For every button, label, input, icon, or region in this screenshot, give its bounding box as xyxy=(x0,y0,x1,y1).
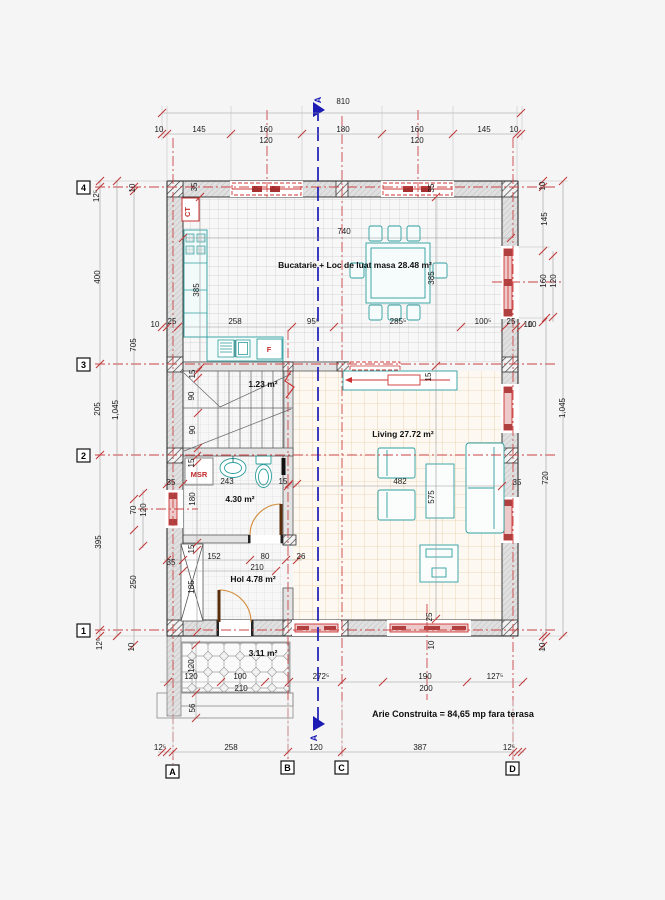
dim-label: 10 xyxy=(538,642,547,651)
washer-label: MSR xyxy=(191,470,208,479)
dim-label: 12⁵ xyxy=(92,190,101,202)
dim-label: 35 xyxy=(513,478,522,487)
dim-label: 210 xyxy=(250,563,264,572)
dim-label: 482 xyxy=(393,477,407,486)
kitchen-sink-icon xyxy=(218,340,250,357)
dim-label: 160 xyxy=(539,274,548,288)
dim-label: 25 xyxy=(507,317,516,326)
dim-label: 15 xyxy=(279,477,288,486)
room-label-stair: 1.23 m² xyxy=(248,379,277,389)
floor-plan-drawing: 810 10 145 160 180 160 145 10 120 120 10… xyxy=(0,0,665,900)
dim-label: 120 xyxy=(259,136,273,145)
dim-label: 210 xyxy=(234,684,248,693)
dim-label: 1,045 xyxy=(558,397,567,418)
dim-label: 395 xyxy=(94,535,103,549)
grid-bubble-c: C xyxy=(335,761,348,774)
dim-label: 15 xyxy=(188,369,197,378)
svg-text:3: 3 xyxy=(81,360,86,370)
dim-label: 10 xyxy=(155,125,164,134)
dim-label: 385 xyxy=(192,283,201,297)
dim-label: 243 xyxy=(220,477,234,486)
grid-bubble-3: 3 xyxy=(77,358,90,371)
dim-label: 127⁵ xyxy=(487,672,504,681)
dim-label: 70 xyxy=(129,505,138,514)
dim-label: 100 xyxy=(233,672,247,681)
shaft xyxy=(282,458,286,475)
armchair xyxy=(378,448,415,478)
grid-bubble-4: 4 xyxy=(77,181,90,194)
dim-label: 10 xyxy=(151,320,160,329)
dim-label: 35 xyxy=(427,183,436,192)
dim-label: 120 xyxy=(410,136,424,145)
dim-label: 152 xyxy=(207,552,221,561)
dim-label: 160 xyxy=(259,125,273,134)
boiler-label: CT xyxy=(183,207,192,217)
room-label-bath: 4.30 m² xyxy=(225,494,254,504)
dim-label: 35 xyxy=(190,182,199,191)
sideboard xyxy=(343,371,457,390)
dim-label: 56 xyxy=(188,703,197,712)
dim-label: 185 xyxy=(187,580,196,594)
window-top-2 xyxy=(381,181,454,197)
dim-label: 120 xyxy=(309,743,323,752)
section-label-top: A xyxy=(313,96,323,103)
dim-label: 35 xyxy=(167,558,176,567)
svg-text:4: 4 xyxy=(81,183,86,193)
room-label-kitchen: Bucatarie + Loc de luat masa 28.48 m² xyxy=(278,260,432,270)
dim-label: 10 xyxy=(524,320,533,329)
dining-table xyxy=(366,243,430,303)
dim-label: 10 xyxy=(538,181,547,190)
dim-label: 15 xyxy=(187,544,196,553)
dim-label: 12⁵ xyxy=(154,743,166,752)
dim-label: 387 xyxy=(413,743,427,752)
pass-through-opening xyxy=(349,361,401,371)
dim-label: 15 xyxy=(424,372,433,381)
dim-label: 35 xyxy=(167,478,176,487)
room-label-terrace: 3.11 m² xyxy=(249,648,278,658)
dim-label: 145 xyxy=(192,125,206,134)
dim-label: 705 xyxy=(129,338,138,352)
window-top-1 xyxy=(230,181,303,197)
dim-label: 10 xyxy=(128,183,137,192)
section-arrow-icon xyxy=(313,102,325,117)
dim-label: 10 xyxy=(427,640,436,649)
window-right-1 xyxy=(501,246,519,319)
door-leaf-icon xyxy=(280,504,283,535)
dim-label: 100⁵ xyxy=(475,317,492,326)
dim-label: 258 xyxy=(228,317,242,326)
terrace-wall-stub xyxy=(167,636,181,716)
dim-label: 272⁵ xyxy=(313,672,330,681)
floor-plan-sheet: 810 10 145 160 180 160 145 10 120 120 10… xyxy=(0,0,665,900)
dim-label: 575 xyxy=(427,490,436,504)
dim-label: 145 xyxy=(540,212,549,226)
window-bottom-1 xyxy=(292,620,341,636)
dim-label: 12⁵ xyxy=(503,743,515,752)
dim-label: 810 xyxy=(336,97,350,106)
section-arrow-icon xyxy=(313,716,325,731)
dim-label: 10 xyxy=(510,125,519,134)
grid-bubble-a: A xyxy=(166,765,179,778)
dim-label: 26 xyxy=(297,552,306,561)
dim-label: 250 xyxy=(129,575,138,589)
dim-label: 740 xyxy=(337,227,351,236)
svg-text:1: 1 xyxy=(81,626,86,636)
dim-label: 385 xyxy=(427,271,436,285)
armchair xyxy=(378,490,415,520)
dim-label: 120 xyxy=(549,274,558,288)
dim-label: 285⁵ xyxy=(390,317,407,326)
section-label-bottom: A xyxy=(309,734,319,741)
toilet-icon xyxy=(256,456,272,488)
svg-text:D: D xyxy=(509,764,516,774)
dim-label: 12⁵ xyxy=(95,638,104,650)
dim-label: 25 xyxy=(425,612,434,621)
svg-text:B: B xyxy=(284,763,291,773)
fridge-label: F xyxy=(267,345,272,354)
room-label-living: Living 27.72 m² xyxy=(372,429,434,439)
dim-label: 120 xyxy=(139,503,148,517)
dim-label: 145 xyxy=(477,125,491,134)
room-label-hall: Hol 4.78 m² xyxy=(230,574,276,584)
svg-text:A: A xyxy=(169,767,176,777)
dim-label: 10 xyxy=(127,642,136,651)
dim-label: 90 xyxy=(188,425,197,434)
dim-label: 258 xyxy=(224,743,238,752)
svg-text:2: 2 xyxy=(81,451,86,461)
dim-label: 95⁵ xyxy=(307,317,319,326)
dim-label: 205 xyxy=(93,402,102,416)
window-right-2 xyxy=(501,384,519,433)
area-note: Arie Construita = 84,65 mp fara terasa xyxy=(372,709,535,719)
grid-bubble-d: D xyxy=(506,762,519,775)
dim-label: 190 xyxy=(418,672,432,681)
grid-bubble-2: 2 xyxy=(77,449,90,462)
dim-label: 120 xyxy=(187,659,196,673)
grid-bubble-b: B xyxy=(281,761,294,774)
dim-label: 160 xyxy=(410,125,424,134)
door-leaf-icon xyxy=(218,590,221,622)
dim-label: 200 xyxy=(419,684,433,693)
dim-label: 180 xyxy=(336,125,350,134)
dim-label: 25 xyxy=(168,317,177,326)
grid-bubble-1: 1 xyxy=(77,624,90,637)
dim-label: 720 xyxy=(541,471,550,485)
dim-label: 15 xyxy=(187,458,196,467)
dim-label: 80 xyxy=(261,552,270,561)
dim-label: 90 xyxy=(187,391,196,400)
dim-label: 1,045 xyxy=(111,399,120,420)
dim-label: 180 xyxy=(188,492,197,506)
dim-label: 400 xyxy=(93,270,102,284)
svg-text:C: C xyxy=(338,763,345,773)
